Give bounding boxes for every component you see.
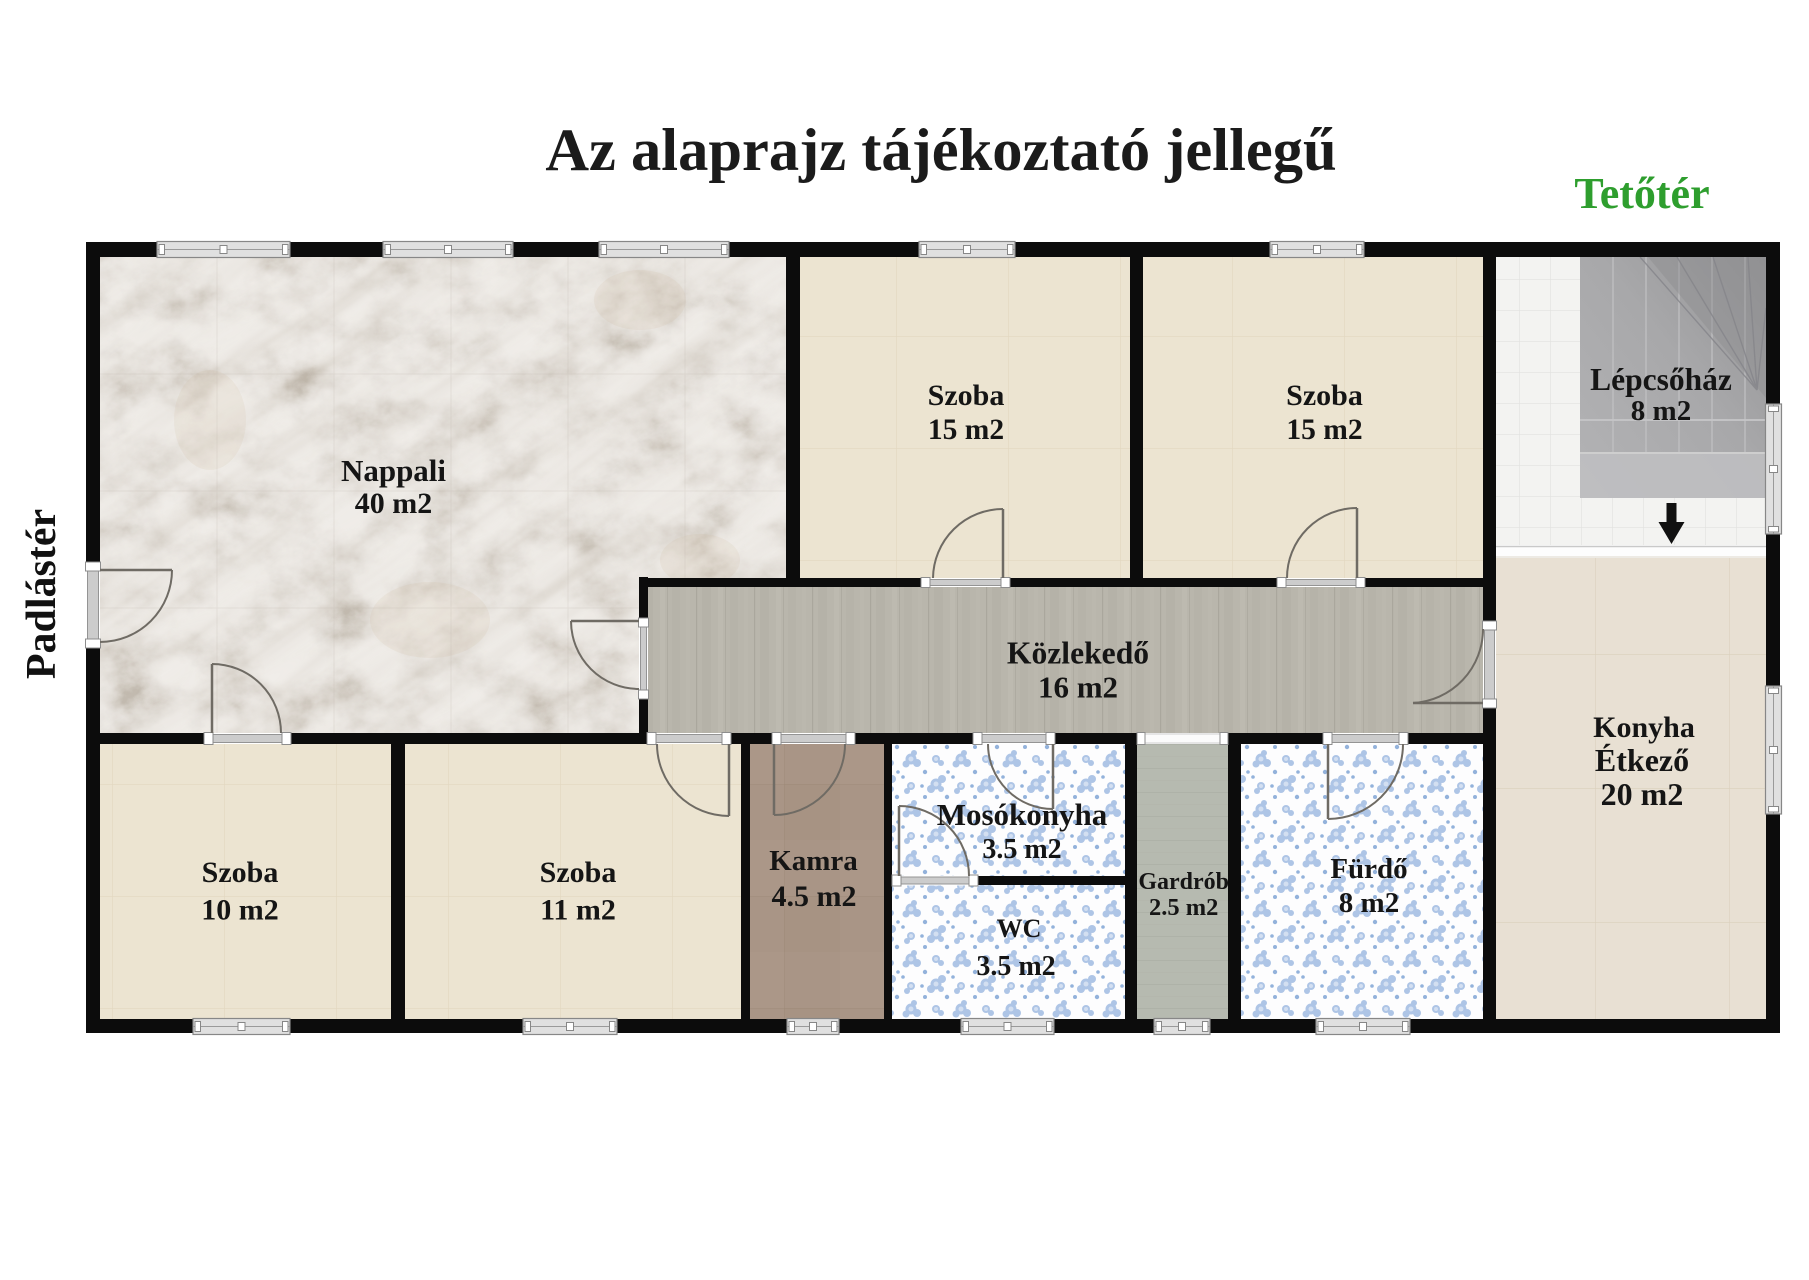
- svg-text:Az alaprajz tájékoztató jelleg: Az alaprajz tájékoztató jellegű: [545, 117, 1336, 184]
- svg-text:Gardrób: Gardrób: [1138, 869, 1229, 895]
- svg-text:Kamra: Kamra: [769, 845, 858, 877]
- svg-text:16 m2: 16 m2: [1038, 670, 1118, 705]
- svg-text:Szoba: Szoba: [202, 856, 279, 889]
- svg-text:8 m2: 8 m2: [1339, 887, 1399, 919]
- svg-text:Közlekedő: Közlekedő: [1007, 636, 1149, 671]
- svg-text:Tetőtér: Tetőtér: [1574, 169, 1709, 218]
- svg-text:Nappali: Nappali: [341, 453, 446, 488]
- svg-text:Étkező: Étkező: [1595, 742, 1689, 778]
- svg-text:Konyha: Konyha: [1593, 711, 1695, 744]
- svg-text:15 m2: 15 m2: [1286, 414, 1362, 446]
- svg-text:15 m2: 15 m2: [928, 414, 1004, 446]
- svg-text:10 m2: 10 m2: [201, 894, 279, 927]
- svg-text:Fürdő: Fürdő: [1330, 853, 1407, 885]
- svg-text:Szoba: Szoba: [540, 856, 617, 889]
- svg-text:Szoba: Szoba: [1286, 379, 1363, 412]
- svg-text:Szoba: Szoba: [928, 379, 1005, 412]
- svg-text:WC: WC: [997, 914, 1042, 943]
- svg-text:Padlástér: Padlástér: [19, 509, 65, 679]
- svg-text:40 m2: 40 m2: [355, 487, 433, 520]
- svg-text:2.5 m2: 2.5 m2: [1149, 894, 1218, 921]
- svg-text:Mosókonyha: Mosókonyha: [937, 797, 1108, 832]
- svg-text:11 m2: 11 m2: [540, 894, 616, 927]
- svg-text:4.5 m2: 4.5 m2: [772, 880, 857, 913]
- svg-text:3.5 m2: 3.5 m2: [982, 834, 1061, 865]
- svg-text:8 m2: 8 m2: [1631, 395, 1691, 427]
- svg-text:Lépcsőház: Lépcsőház: [1590, 362, 1732, 397]
- svg-text:3.5 m2: 3.5 m2: [976, 951, 1055, 982]
- svg-text:20 m2: 20 m2: [1601, 776, 1684, 812]
